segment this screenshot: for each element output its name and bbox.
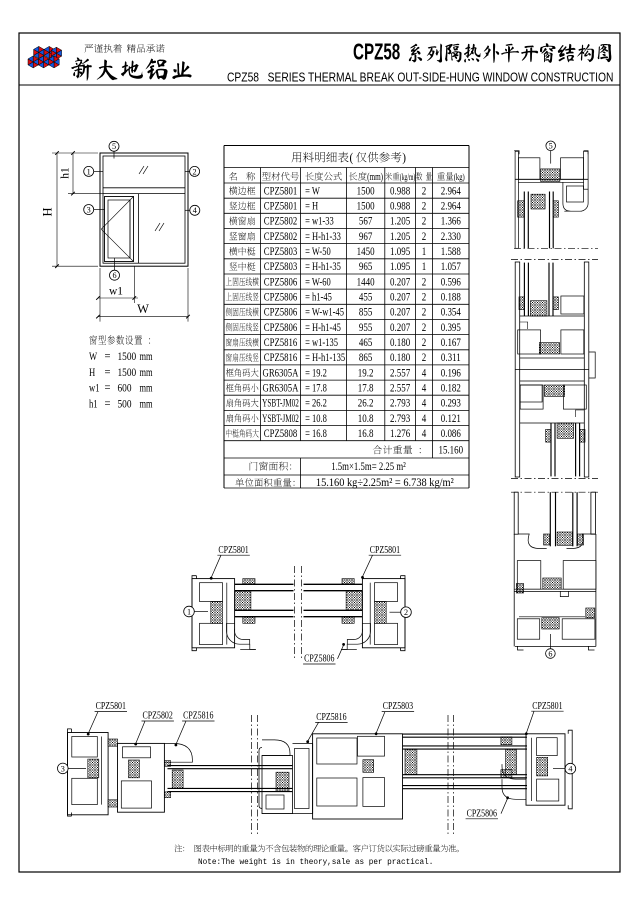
- svg-text:0.086: 0.086: [441, 428, 461, 440]
- svg-text:GR6305A: GR6305A: [263, 382, 299, 394]
- svg-text:CPZ5802: CPZ5802: [264, 216, 297, 228]
- svg-text:(kg): (kg): [454, 172, 465, 182]
- svg-text:= 19.2: = 19.2: [305, 367, 327, 380]
- svg-text:= 16.8: = 16.8: [305, 428, 327, 441]
- svg-text:2.793: 2.793: [390, 398, 410, 410]
- svg-text:mm: mm: [140, 351, 153, 364]
- svg-text:= 10.8: = 10.8: [305, 413, 327, 426]
- svg-text:19.2: 19.2: [358, 367, 374, 379]
- svg-text:= H-h1-45: = H-h1-45: [305, 322, 341, 335]
- svg-text:5: 5: [549, 142, 553, 151]
- svg-text:CPZ5806: CPZ5806: [304, 652, 335, 665]
- svg-text:YSBT-JM02: YSBT-JM02: [262, 397, 299, 410]
- svg-text:=: =: [105, 365, 111, 379]
- svg-text:600: 600: [118, 382, 132, 395]
- svg-text:2: 2: [422, 292, 426, 304]
- svg-text:4: 4: [422, 383, 426, 395]
- svg-text:4: 4: [422, 428, 426, 440]
- svg-text:w1: w1: [109, 286, 123, 298]
- svg-text:2: 2: [422, 216, 426, 228]
- svg-text:0.180: 0.180: [390, 337, 410, 349]
- svg-text:2: 2: [422, 337, 426, 349]
- svg-text:455: 455: [359, 292, 372, 304]
- svg-text:= H-h1-35: = H-h1-35: [305, 261, 341, 274]
- svg-text:0.207: 0.207: [390, 322, 410, 334]
- svg-text:YSBT-JM02: YSBT-JM02: [262, 412, 299, 425]
- svg-text:W: W: [137, 302, 149, 316]
- svg-text:0.596: 0.596: [441, 276, 461, 288]
- svg-text:4: 4: [422, 367, 426, 379]
- svg-text:1500: 1500: [118, 366, 137, 379]
- svg-text:2: 2: [422, 276, 426, 288]
- svg-text:mm: mm: [140, 367, 153, 380]
- svg-text:465: 465: [359, 337, 372, 349]
- svg-text:500: 500: [118, 397, 132, 410]
- svg-text:(: (: [350, 150, 354, 165]
- svg-text:1500: 1500: [357, 185, 375, 197]
- svg-text:= H-h1-135: = H-h1-135: [305, 352, 345, 365]
- svg-text:2: 2: [422, 231, 426, 243]
- svg-text:0.354: 0.354: [441, 307, 461, 319]
- svg-text:1.366: 1.366: [441, 216, 461, 228]
- svg-text:5: 5: [112, 142, 116, 151]
- svg-text:CPZ5816: CPZ5816: [264, 337, 297, 349]
- svg-text:0.207: 0.207: [390, 292, 410, 304]
- svg-text:0.188: 0.188: [441, 292, 461, 304]
- svg-text:3: 3: [61, 764, 65, 773]
- svg-text:CPZ5816: CPZ5816: [183, 709, 214, 722]
- svg-text:855: 855: [359, 307, 372, 319]
- svg-text:0.311: 0.311: [441, 352, 461, 364]
- svg-text:4: 4: [422, 413, 426, 425]
- svg-text:= H-h1-33: = H-h1-33: [305, 231, 341, 244]
- svg-text:3: 3: [87, 205, 91, 214]
- svg-text:CPZ5806: CPZ5806: [264, 307, 297, 319]
- svg-text:2.964: 2.964: [441, 185, 461, 197]
- svg-text:1.588: 1.588: [441, 246, 461, 258]
- svg-text:CPZ58 SERIES THERMAL BREAK O: CPZ58 SERIES THERMAL BREAK OUT-SIDE-HUNG…: [227, 71, 613, 84]
- svg-text:mm: mm: [140, 382, 153, 395]
- svg-text:10.8: 10.8: [358, 413, 374, 425]
- svg-text:= W-w1-45: = W-w1-45: [305, 307, 344, 320]
- svg-text:(mm): (mm): [367, 171, 383, 182]
- svg-text:955: 955: [359, 322, 372, 334]
- svg-text:H: H: [41, 207, 55, 216]
- svg-text:15.160: 15.160: [438, 445, 463, 457]
- svg-text:2: 2: [422, 185, 426, 197]
- svg-text:0.167: 0.167: [441, 337, 461, 349]
- svg-text:= w1-33: = w1-33: [305, 216, 334, 229]
- svg-text:0.988: 0.988: [390, 185, 410, 197]
- svg-text:CPZ5803: CPZ5803: [264, 246, 297, 258]
- svg-text:= W-60: = W-60: [305, 276, 331, 289]
- svg-text:1: 1: [422, 246, 426, 258]
- svg-text:= w1-135: = w1-135: [305, 337, 338, 350]
- svg-text:1.095: 1.095: [390, 246, 410, 258]
- svg-text:CPZ5816: CPZ5816: [264, 352, 297, 364]
- svg-text:1.276: 1.276: [390, 428, 410, 440]
- svg-text:h1: h1: [89, 398, 98, 411]
- svg-text:1.205: 1.205: [390, 216, 410, 228]
- svg-text:CPZ5801: CPZ5801: [264, 185, 297, 197]
- svg-text:CPZ5806: CPZ5806: [264, 322, 297, 334]
- svg-text:CPZ5802: CPZ5802: [264, 231, 297, 243]
- svg-text:Note:The weight is in theory,s: Note:The weight is in theory,sale as per…: [198, 858, 433, 867]
- svg-text:17.8: 17.8: [358, 383, 374, 395]
- svg-text:2: 2: [422, 201, 426, 213]
- svg-text:865: 865: [359, 352, 372, 364]
- svg-text:2: 2: [422, 352, 426, 364]
- svg-text:mm: mm: [140, 398, 153, 411]
- svg-text:CPZ5801: CPZ5801: [532, 700, 563, 713]
- svg-text:4: 4: [568, 765, 572, 774]
- svg-text:): ): [402, 150, 406, 165]
- svg-text:2: 2: [422, 322, 426, 334]
- svg-text:=: =: [105, 397, 111, 411]
- svg-text:16.8: 16.8: [358, 428, 374, 440]
- svg-text:=: =: [105, 381, 111, 395]
- svg-text:2.557: 2.557: [390, 383, 410, 395]
- svg-text:CPZ5801: CPZ5801: [96, 700, 127, 713]
- svg-text:CPZ5803: CPZ5803: [383, 700, 414, 713]
- svg-text:CPZ5806: CPZ5806: [467, 807, 498, 820]
- svg-text:CPZ5803: CPZ5803: [264, 261, 297, 273]
- svg-text:1: 1: [87, 167, 91, 176]
- svg-text:CPZ5806: CPZ5806: [264, 276, 297, 288]
- svg-text:2.793: 2.793: [390, 413, 410, 425]
- svg-text:1.5m×1.5m= 2.25 m²: 1.5m×1.5m= 2.25 m²: [331, 461, 406, 473]
- svg-text:2: 2: [404, 608, 408, 617]
- svg-text:567: 567: [359, 216, 372, 228]
- svg-text:0.988: 0.988: [390, 201, 410, 213]
- svg-text:h1: h1: [60, 167, 72, 179]
- svg-text:6: 6: [548, 649, 552, 658]
- svg-text:0.180: 0.180: [390, 352, 410, 364]
- svg-text:0.293: 0.293: [441, 398, 461, 410]
- svg-text:1.205: 1.205: [390, 231, 410, 243]
- svg-text:w1: w1: [89, 382, 100, 395]
- svg-text:= h1-45: = h1-45: [305, 291, 332, 304]
- svg-text:0.196: 0.196: [441, 367, 461, 379]
- svg-text:CPZ5816: CPZ5816: [316, 711, 347, 724]
- svg-text:2: 2: [422, 307, 426, 319]
- svg-text:CPZ58: CPZ58: [353, 39, 400, 65]
- svg-text:2.964: 2.964: [441, 201, 461, 213]
- svg-text:0.207: 0.207: [390, 307, 410, 319]
- svg-text:0.121: 0.121: [441, 413, 461, 425]
- svg-text:1: 1: [422, 261, 426, 273]
- svg-text:0.395: 0.395: [441, 322, 461, 334]
- svg-text:H: H: [89, 367, 96, 380]
- svg-text:CPZ5806: CPZ5806: [264, 291, 297, 303]
- svg-text:(kg/m): (kg/m): [400, 171, 416, 182]
- svg-text:1440: 1440: [357, 276, 375, 288]
- svg-text:2: 2: [193, 167, 197, 176]
- svg-text:CPZ5801: CPZ5801: [218, 544, 249, 557]
- svg-text:CPZ5808: CPZ5808: [264, 428, 297, 440]
- svg-text:0.207: 0.207: [390, 276, 410, 288]
- svg-text:26.2: 26.2: [358, 398, 374, 410]
- svg-text:W: W: [89, 351, 97, 364]
- svg-text:1.095: 1.095: [390, 261, 410, 273]
- svg-text:965: 965: [359, 261, 372, 273]
- svg-text:CPZ5802: CPZ5802: [143, 709, 174, 722]
- svg-text:CPZ5801: CPZ5801: [264, 201, 297, 213]
- svg-text:4: 4: [422, 398, 426, 410]
- svg-text:1500: 1500: [118, 350, 137, 363]
- svg-text:CPZ5801: CPZ5801: [370, 544, 401, 557]
- svg-text:15.160 kg÷2.25m² = 6.738 kg/m²: 15.160 kg÷2.25m² = 6.738 kg/m²: [316, 477, 454, 490]
- svg-text:= W-50: = W-50: [305, 246, 331, 259]
- svg-text:=: =: [105, 349, 111, 363]
- svg-text:1450: 1450: [357, 246, 375, 258]
- svg-text:2.330: 2.330: [441, 231, 461, 243]
- svg-text:1500: 1500: [357, 201, 375, 213]
- svg-text:= 17.8: = 17.8: [305, 382, 327, 395]
- svg-text:1: 1: [187, 607, 191, 616]
- svg-text:GR6305A: GR6305A: [263, 367, 299, 379]
- svg-text:1.057: 1.057: [441, 261, 461, 273]
- svg-text:4: 4: [193, 206, 197, 215]
- svg-text:= 26.2: = 26.2: [305, 398, 327, 411]
- svg-text:6: 6: [112, 271, 116, 280]
- svg-text:2.557: 2.557: [390, 367, 410, 379]
- svg-text:967: 967: [359, 231, 372, 243]
- svg-text:0.182: 0.182: [441, 383, 461, 395]
- svg-text:= W: = W: [305, 185, 320, 198]
- svg-text:= H: = H: [305, 201, 318, 214]
